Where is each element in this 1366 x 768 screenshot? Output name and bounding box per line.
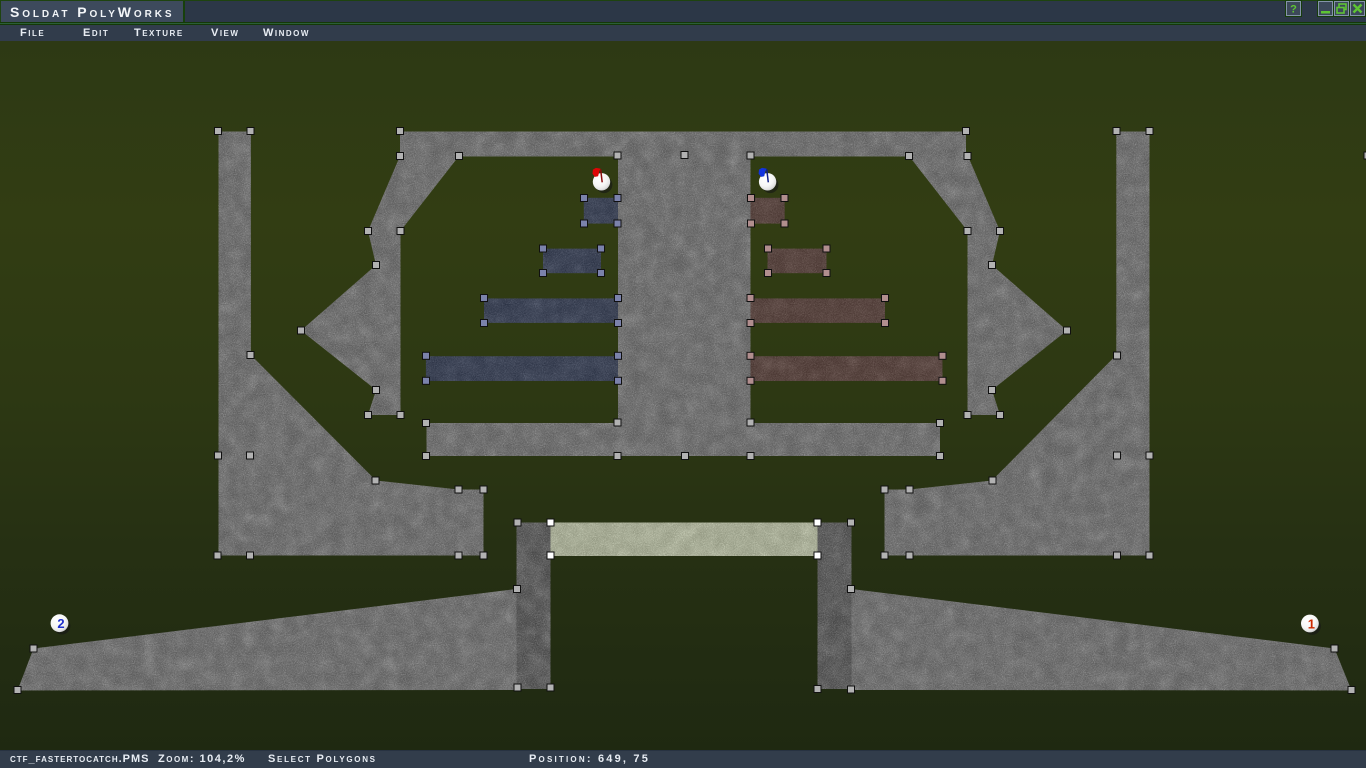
- svg-text:1: 1: [1308, 616, 1315, 631]
- svg-text:?: ?: [1290, 4, 1297, 16]
- svg-text:2: 2: [57, 616, 64, 631]
